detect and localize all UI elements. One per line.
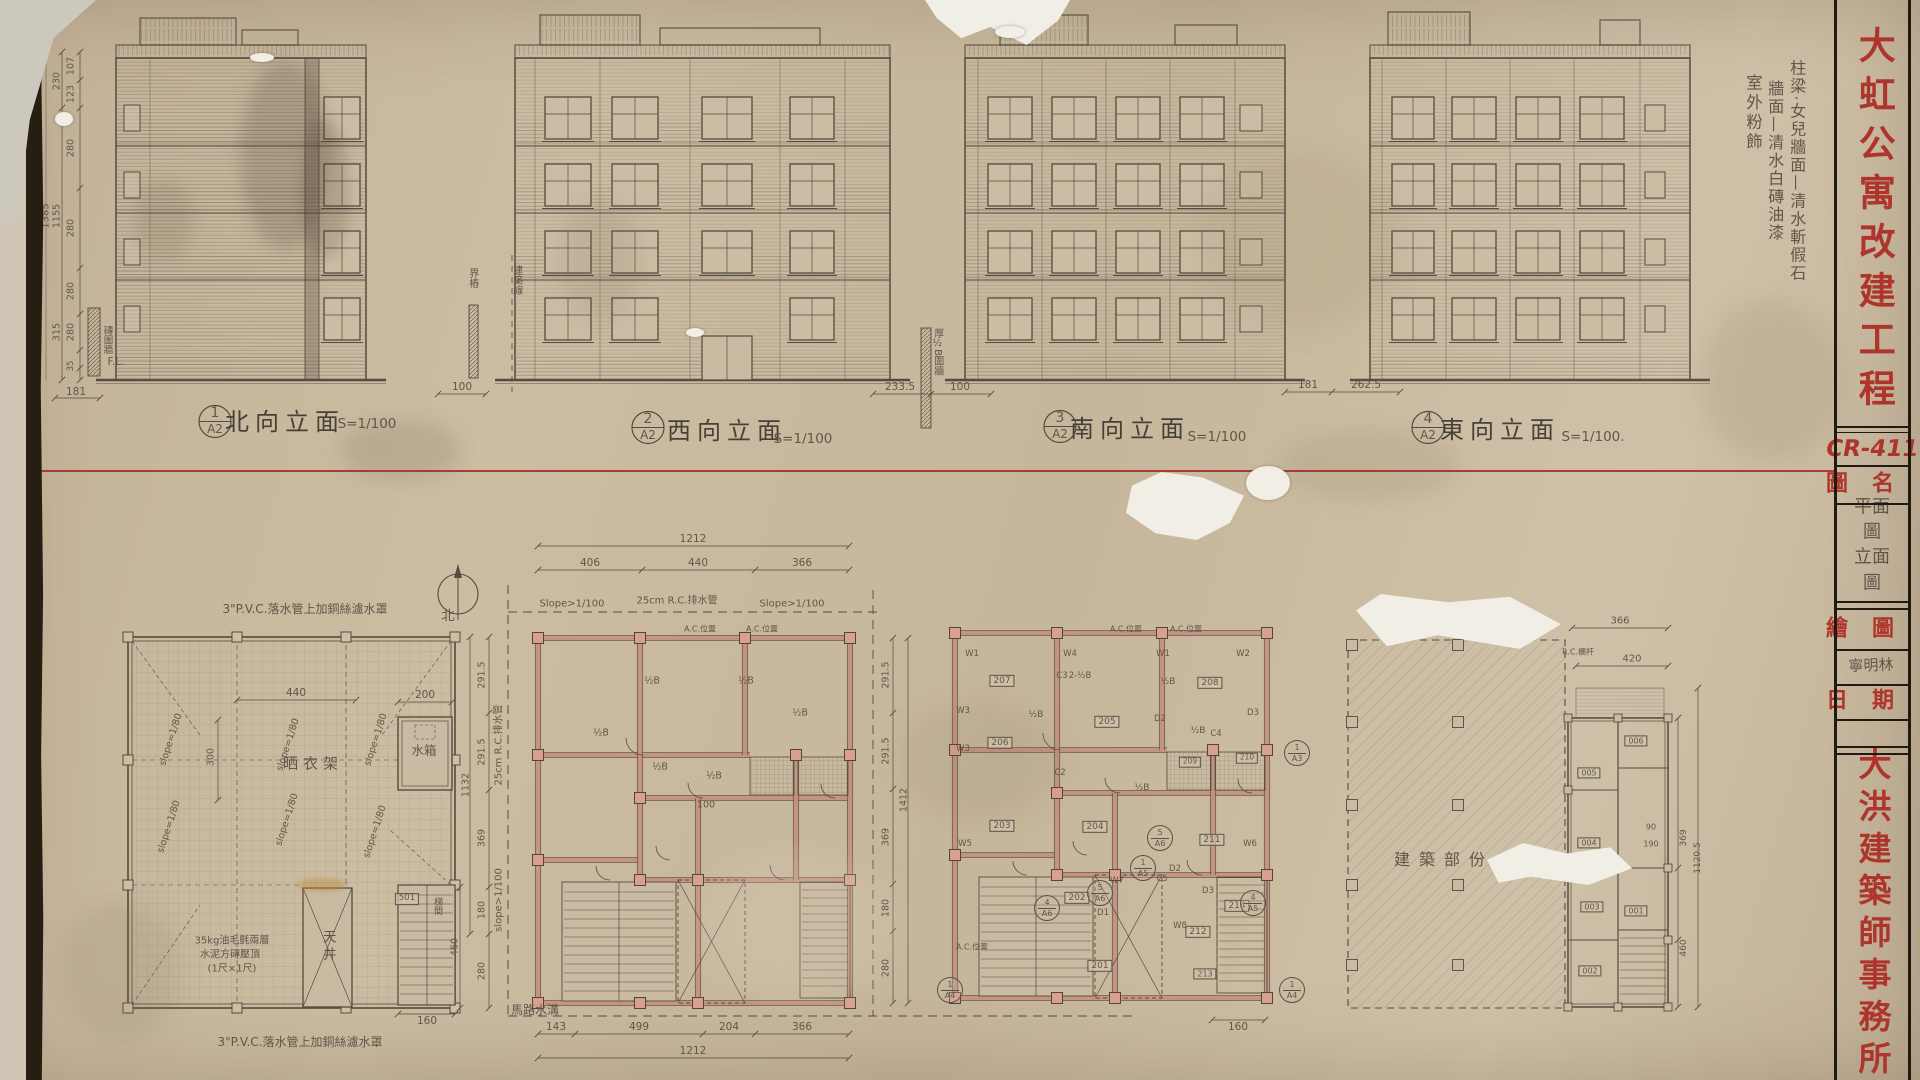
plan_c-tags-w4: W4 [1063,650,1077,660]
plan_b-d406: 406 [580,557,600,569]
title-block-rule [1837,465,1908,467]
detail-ref-circle: 4A5 [1240,890,1266,916]
title-block-rule [1837,649,1908,651]
ref-sheet: A4 [1287,991,1298,1000]
elev_dims-s123: 123 [67,85,78,103]
plan_d-label: 建築部份 [1394,851,1494,869]
plan_c-tags-w7: W7 [1110,877,1124,887]
ref-num: 4 [1044,898,1049,907]
plan_c-rooms-r209: 209 [1179,757,1201,768]
plan_e-d1120: 1120.5 [1693,842,1703,874]
plan_b-d100: 100 [697,801,715,812]
plan_c-rooms-r201: 201 [1087,960,1112,972]
finish_notes-col3: 室外粉飾 [1743,74,1762,152]
plan_e-d369: 369 [1679,829,1689,846]
site_labels-brick_wall: 磚圍牆 [101,326,112,355]
plan_b-d291: 291.5 [882,737,893,764]
roof_plan-d280: 280 [478,962,489,980]
ref-num: 1 [947,980,952,989]
plan_e-rooms-r004: 004 [1577,837,1600,848]
plan_b-half_b: ½B [593,729,609,740]
plan_b-half_b: ½B [738,677,754,688]
plan_b-half_b: ½B [706,772,722,783]
title_block-project_title: 大虹公寓改建工程 [1852,26,1895,418]
title_block-date_label: 日期 [1826,688,1918,713]
plan_b-slope: Slope>1/100 [540,598,605,610]
plan_e-rc_note: R.C.欄杆 [1562,647,1594,656]
plan_e-d460: 460 [1679,939,1689,956]
plan_c-ac: A.C.位置 [1110,624,1142,633]
plan_c-rooms-r212: 212 [1185,926,1210,938]
elev_dims-t1155: 1155 [53,204,64,228]
roof_plan-d200: 200 [415,689,435,701]
title-block-rule [1837,432,1908,433]
plan_c-tags-w5: W5 [958,840,972,850]
ref-sheet: A6 [1155,839,1166,848]
plan_c-rooms-r210: 210 [1236,753,1258,764]
plan_c-rooms-r206: 206 [987,737,1012,749]
plan_b-d204: 204 [719,1021,739,1033]
plan_c-tags-w2: W2 [1236,650,1250,660]
elevations-2-name: 南向立面 [1070,416,1190,444]
elev_dims-s280: 280 [67,323,78,341]
site_labels-boundary_stake: 界樁 [466,268,478,288]
plan_c-ac: A.C.位置 [1170,624,1202,633]
site_labels-building_line: 建築線 [510,265,522,295]
finish_notes-col1: 柱梁·女兒牆面—清水斬假石 [1787,59,1805,282]
plan_b-d180: 180 [882,899,893,917]
plan_c-tags-c5: C5 [1156,875,1167,885]
roof_plan-d160: 160 [417,1015,437,1027]
title-block-rule [1837,753,1908,755]
plan_c-rooms-r203: 203 [989,820,1014,832]
elev_dims-g181: 181 [1298,379,1318,391]
detail-ref-circle: 1A4 [1279,977,1305,1003]
elevations-0-scale: S=1/100 [338,417,397,433]
plan_c-tags-d3: D3 [1202,887,1214,897]
plan_e-rooms-r001: 001 [1624,905,1647,916]
plan_c-half_b: ½B [1191,726,1206,736]
title_block-drawing_name_label: 圖名 [1826,471,1918,496]
finish_notes-col2: 牆面—清水白磚油漆 [1765,80,1783,242]
roof_plan-d440: 440 [286,687,306,699]
title_block-drawing_no: CR-411 [1824,436,1920,462]
plan_b-ac: A.C.位置 [746,624,778,633]
title-block-rule [1837,719,1908,721]
plan_c-tags-d2: D2 [1154,715,1166,725]
elevations-3-scale: S=1/100. [1561,430,1624,446]
plan_c-ac: A.C.位置 [956,942,988,951]
elevations-1-scale: S=1/100 [774,432,833,448]
elevations-3-name: 東向立面 [1440,417,1560,445]
plan_b-half_b: ½B [792,709,808,720]
elevations-1-sheet: A2 [640,429,656,443]
red-divider-line [40,470,1836,472]
elevations-1-num: 2 [644,411,653,427]
ref-sheet: A6 [1042,909,1053,918]
plan_c-rooms-r207: 207 [989,675,1014,687]
plan_e-d90: 90 [1646,822,1656,831]
detail-ref-circle: 5A6 [1147,825,1173,851]
plan_e-rooms-r002: 002 [1578,965,1601,976]
elevations-0-sheet: A2 [207,423,223,437]
elev_dims-s315: 315 [53,323,64,341]
detail-ref-circle: 5A6 [1087,880,1113,906]
plan_e-d420: 420 [1622,653,1641,665]
title-block-rule [1837,601,1908,603]
plan_c-tags-w1: W1 [1156,650,1170,660]
roof_plan-d291: 291.5 [478,738,489,765]
elev_dims-s280: 280 [67,219,78,237]
roof_plan-d460: 460 [451,938,462,956]
elev_dims-s35: 35 [67,361,77,372]
title-block-rule [1837,684,1908,686]
ref-sheet: A3 [1292,754,1303,763]
ref-num: 5 [1097,883,1102,892]
plan_b-d499: 499 [629,1021,649,1033]
roof_plan-felt_note_3: (1尺×1尺) [208,963,257,975]
title-block-rule [1837,608,1908,610]
detail-ref-circle: 4A6 [1034,895,1060,921]
roof_plan-pvc_note: 3"P.V.C.落水管上加銅絲濾水罩 [217,1036,382,1050]
ref-sheet: A4 [945,991,956,1000]
detail-ref-circle: 1A5 [1130,855,1156,881]
plan_c-rooms-r208: 208 [1197,677,1222,689]
drawing-sheet: 1A2北向立面S=1/1002A2西向立面S=1/1003A2南向立面S=1/1… [0,0,1920,1080]
plan_b-d366: 366 [792,557,812,569]
title_block-drawing_name_value: 平面圖 立面圖 [1848,495,1896,596]
plan_c-half_b: ½B [1135,783,1150,793]
plan_b-d369: 369 [882,828,893,846]
roof_plan-light_well: 天井 [319,930,335,965]
elev_dims-s107: 107 [67,57,78,75]
torn-patch [686,328,704,337]
roof_plan-felt_note_2: 水泥方磚壓頂 [200,949,260,961]
plan_e-d190: 190 [1643,839,1658,848]
plan_b-half_b: ½B [652,763,668,774]
plan_c-d160: 160 [1228,1021,1248,1033]
torn-patch [1246,466,1290,500]
elevations-0-name: 北向立面 [225,409,345,437]
ref-sheet: A5 [1138,869,1149,878]
plan_c-tags-c2: C2 [1054,769,1065,779]
title-block-rule [1837,426,1908,428]
plan_b-d280: 280 [882,959,893,977]
roof_plan-room_501: 501 [395,893,419,905]
plan_c-rooms-r204: 204 [1082,821,1107,833]
plan_c-rooms-r205: 205 [1094,716,1119,728]
ref-sheet: A6 [1095,894,1106,903]
plan_c-tags-w3: W3 [956,745,970,755]
elev_dims-g233: 233.5 [885,381,915,393]
elev_dims-b181: 181 [66,386,86,398]
elevations-1-name: 西向立面 [667,418,787,446]
plan_c-two_half_b: 2-½B [1069,672,1092,682]
title-block-rule [1837,746,1908,748]
detail-ref-circle: 1A4 [937,977,963,1003]
plan_b-slope: Slope>1/100 [760,598,825,610]
elevations-3-sheet: A2 [1420,429,1436,443]
plan_b-d1212: 1212 [680,1045,707,1057]
roof_plan-stair_hall: 梯間 [432,897,442,915]
plan_c-tags-c3: C3 [1056,672,1067,682]
elev_dims-g262: 262.5 [1351,379,1381,391]
plan_b-ac: A.C.位置 [684,624,716,633]
roof_plan-north: 北 [441,609,455,625]
ref-num: 5 [1157,828,1162,837]
plan_c-tags-c4: C4 [1210,730,1221,740]
roof_plan-felt_note_1: 35kg油毛氈兩層 [195,935,270,947]
elev_dims-s280: 280 [67,139,78,157]
plan_b-drain: 25cm R.C.排水管 [636,595,717,607]
roof_plan-road_slope: slope>1/100 [493,868,505,932]
plan_c-tags-d1: D1 [1097,909,1109,919]
roof_plan-d369: 369 [478,829,489,847]
plan_b-d1212: 1212 [680,533,707,545]
plan_b-d143: 143 [546,1021,566,1033]
plan_c-tags-d2: D2 [1169,865,1181,875]
plan_e-d366: 366 [1610,615,1629,627]
elevations-0-num: 1 [211,405,220,421]
roof_plan-drying_rack: 晒衣架 [283,755,343,772]
linework-svg [0,0,1920,1080]
roof_plan-d300: 300 [207,748,218,766]
plan_c-tags-w1: W1 [965,650,979,660]
title_block-office_name: 大洪建築師事務所 [1853,747,1891,1080]
title-block-rule [1834,0,1837,1080]
plan_c-rooms-r213: 213 [1193,968,1216,979]
ref-num: 1 [1140,858,1145,867]
roof_plan-gutter: 馬路水溝 [511,1004,559,1018]
detail-ref-circle: 1A3 [1284,740,1310,766]
plan_b-d366: 366 [792,1021,812,1033]
roof_plan-drain: 25cm R.C.排水管 [493,704,505,785]
title_block-drawn_by_label: 繪圖 [1826,616,1918,641]
plan_c-half_b: ½B [1161,677,1176,687]
plan_e-rooms-r006: 006 [1624,735,1647,746]
torn-patch [250,53,274,62]
ref-num: 1 [1289,980,1294,989]
roof_plan-pvc_note: 3"P.V.C.落水管上加銅絲濾水罩 [222,603,387,617]
elev_dims-s280: 280 [67,282,78,300]
torn-patch [55,112,73,126]
elevations-2-scale: S=1/100 [1188,430,1247,446]
plan_c-tags-w3: W3 [956,707,970,717]
title_block-drawn_by_value: 寧明林 [1848,657,1894,676]
roof_plan-d291: 291.5 [478,661,489,688]
plan_e-rooms-r003: 003 [1580,901,1603,912]
plan_c-tags-d3: D3 [1247,709,1259,719]
elevation-drawings [96,12,1710,444]
ref-num: 1 [1294,743,1299,752]
elevations-2-sheet: A2 [1052,428,1068,442]
plan_c-rooms-r202: 202 [1064,892,1089,904]
roof_plan-d1132: 1132 [462,773,473,797]
elev_dims-b100: 100 [452,381,472,393]
elevations-2-num: 3 [1056,410,1065,426]
title-block-rule [1908,0,1911,1080]
ref-num: 4 [1250,893,1255,902]
plan_b-half_b: ½B [644,677,660,688]
plan_b-d440: 440 [688,557,708,569]
site_labels-fl: F.L. [108,356,125,368]
plan_c-rooms-r211: 211 [1199,834,1224,846]
plan_c-tags-w6: W6 [1243,840,1257,850]
roof_plan-water_tank: 水箱 [411,744,436,758]
plan_b-d291: 291.5 [882,661,893,688]
paper-edge-strip [26,0,44,1080]
site_labels-wall_thick: 厚½B圍牆 [931,328,943,376]
plan_c-half_b: ½B [1029,710,1044,720]
elev_dims-g100: 100 [950,381,970,393]
title-block-rule [1837,503,1908,505]
plan_e-rooms-r005: 005 [1577,767,1600,778]
ref-sheet: A5 [1248,904,1259,913]
torn-patch [995,26,1025,38]
plan_b-d1412: 1412 [900,788,911,812]
plan-d-existing [1347,640,1566,1009]
plan_c-tags-w8: W8 [1173,922,1187,932]
roof_plan-d180: 180 [478,901,489,919]
elev_dims-s230: 230 [53,72,64,90]
elevations-3-num: 4 [1424,411,1433,427]
